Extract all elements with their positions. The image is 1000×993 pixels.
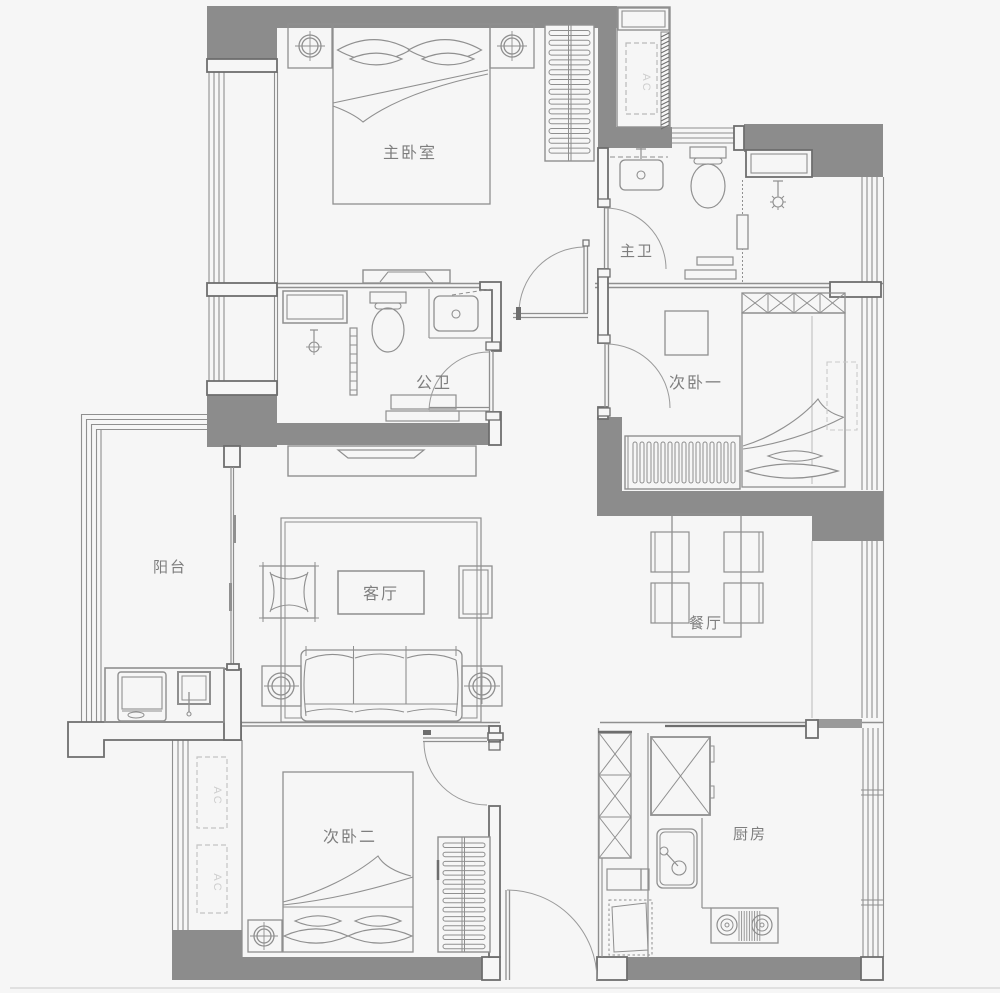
svg-text:餐厅: 餐厅: [689, 615, 723, 632]
svg-text:厨房: 厨房: [733, 826, 767, 843]
svg-text:次卧一: 次卧一: [669, 374, 723, 392]
svg-text:AC: AC: [211, 873, 223, 892]
svg-text:AC: AC: [640, 73, 652, 92]
svg-text:主卫: 主卫: [620, 243, 654, 260]
svg-text:次卧二: 次卧二: [323, 828, 377, 846]
svg-text:AC: AC: [211, 786, 223, 805]
svg-text:阳台: 阳台: [153, 559, 187, 576]
svg-text:客厅: 客厅: [363, 585, 399, 603]
svg-text:主卧室: 主卧室: [383, 144, 437, 162]
svg-text:公卫: 公卫: [416, 375, 452, 392]
